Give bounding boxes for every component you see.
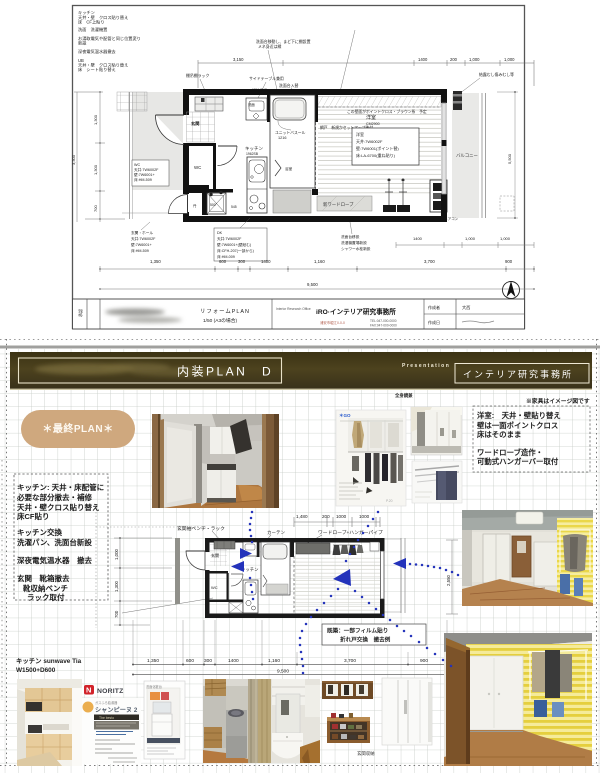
svg-text:1/50 (A3の場合): 1/50 (A3の場合)	[203, 317, 238, 324]
svg-text:作成日: 作成日	[428, 319, 440, 325]
svg-text:天井:7W6002F: 天井:7W6002F	[356, 138, 383, 144]
svg-text:必要な部分撤去・補修: 必要な部分撤去・補修	[16, 492, 92, 502]
svg-text:深夜電気温水器 撤去: 深夜電気温水器 撤去	[17, 555, 92, 565]
svg-text:新設: 新設	[78, 40, 87, 47]
svg-text:玄関・ホール: 玄関・ホール	[131, 230, 153, 235]
svg-text:新ワードローブ: 新ワードローブ	[323, 201, 354, 208]
svg-text:NORITZ: NORITZ	[97, 688, 124, 695]
svg-text:キッチン交換: キッチン交換	[17, 527, 62, 537]
svg-text:iRO·インテリア研究事務所: iRO·インテリア研究事務所	[316, 307, 396, 316]
svg-text:600: 600	[186, 658, 194, 664]
svg-text:200: 200	[450, 57, 458, 62]
svg-text:玄関収納: 玄関収納	[357, 750, 375, 757]
svg-text:600: 600	[219, 259, 227, 264]
svg-text:ラック取付: ラック取付	[27, 592, 65, 602]
svg-text:1,000: 1,000	[504, 57, 515, 62]
svg-text:1,160: 1,160	[268, 658, 280, 664]
svg-text:内装PLAN: 内装PLAN	[177, 365, 247, 379]
svg-text:天井・壁クロス貼り替え: 天井・壁クロス貼り替え	[17, 502, 100, 512]
svg-text:3,150: 3,150	[233, 57, 244, 62]
svg-text:棚吊棚ラック: 棚吊棚ラック	[186, 73, 209, 78]
svg-text:WC: WC	[211, 585, 218, 590]
svg-text:1400: 1400	[413, 236, 423, 241]
svg-text:N: N	[86, 686, 91, 695]
svg-text:1,000: 1,000	[500, 236, 511, 241]
svg-text:天井:7W6002F: 天井:7W6002F	[131, 236, 156, 241]
svg-text:床 シート貼り替え: 床 シート貼り替え	[78, 66, 116, 73]
svg-text:洗濯パン、洗面台新設: 洗濯パン、洗面台新設	[17, 537, 92, 547]
svg-text:900: 900	[505, 259, 513, 264]
svg-text:1400: 1400	[228, 658, 239, 664]
svg-text:1,000: 1,000	[114, 548, 119, 560]
svg-text:キッチン: 天井・床配管に: キッチン: 天井・床配管に	[17, 482, 104, 492]
svg-text:壁は一面ポイントクロス: 壁は一面ポイントクロス	[477, 421, 558, 430]
svg-text:洗面化粧台: 洗面化粧台	[146, 684, 162, 689]
svg-text:W1500+D600: W1500+D600	[16, 667, 56, 674]
svg-text:1,000: 1,000	[469, 57, 480, 62]
svg-text:洗濯機置場新設: 洗濯機置場新設	[341, 240, 367, 245]
svg-text:The besto: The besto	[99, 716, 114, 720]
svg-text:ガスふろ給湯器: ガスふろ給湯器	[95, 700, 118, 705]
svg-text:1,350: 1,350	[150, 259, 161, 264]
svg-text:床:CFH-207(一部から): 床:CFH-207(一部から)	[217, 248, 254, 253]
svg-text:1,300: 1,300	[114, 580, 119, 592]
svg-text:キッチン: キッチン	[245, 146, 263, 151]
svg-text:700: 700	[114, 610, 119, 618]
svg-text:＊GO: ＊GO	[339, 413, 351, 418]
svg-text:1,480: 1,480	[296, 514, 308, 519]
svg-text:9,500: 9,500	[277, 669, 289, 675]
svg-text:300: 300	[204, 658, 212, 664]
svg-text:1962SB: 1962SB	[246, 152, 259, 156]
svg-text:全身鏡兼: 全身鏡兼	[394, 392, 413, 399]
svg-text:結露むし傷みむし等: 結露むし傷みむし等	[479, 72, 514, 77]
svg-text:1,350: 1,350	[147, 658, 159, 664]
svg-text:1,300: 1,300	[93, 164, 98, 175]
svg-text:床:LA-6700(重ね貼り): 床:LA-6700(重ね貼り)	[356, 152, 396, 158]
svg-text:玄関: 玄関	[211, 552, 219, 558]
svg-text:床 CF上貼り: 床 CF上貼り	[78, 19, 105, 26]
svg-text:900: 900	[420, 658, 428, 664]
svg-text:床CF貼り: 床CF貼り	[17, 511, 50, 521]
svg-text:洗面台入替: 洗面台入替	[279, 83, 299, 88]
svg-text:バルコニー: バルコニー	[456, 153, 478, 158]
svg-text:床はそのまま: 床はそのまま	[477, 430, 521, 439]
svg-text:承認: 承認	[77, 309, 83, 317]
svg-text:1216: 1216	[278, 136, 286, 140]
svg-text:Presentation: Presentation	[402, 363, 450, 369]
svg-text:丹: 丹	[193, 204, 197, 208]
svg-text:壁:7W6001(ポイント替): 壁:7W6001(ポイント替)	[356, 145, 399, 151]
svg-text:洗面台移設: 洗面台移設	[341, 234, 360, 239]
svg-text:この壁面がポイントクロス・ブラウン系 予定: この壁面がポイントクロス・ブラウン系 予定	[347, 109, 427, 114]
svg-text:2,550: 2,550	[446, 574, 451, 586]
svg-text:お湯取電気や配管と同じ位置変り: お湯取電気や配管と同じ位置変り	[78, 35, 141, 42]
svg-text:洗面 洗濯機置: 洗面 洗濯機置	[78, 26, 107, 33]
svg-text:既築：一部フィルム貼り: 既築：一部フィルム貼り	[327, 627, 388, 635]
svg-text:WC: WC	[194, 165, 201, 170]
svg-text:P.20: P.20	[386, 499, 393, 503]
svg-text:1,300: 1,300	[93, 114, 98, 125]
svg-text:1400: 1400	[261, 259, 271, 264]
svg-text:玄関袖ベンチ・ラック: 玄関袖ベンチ・ラック	[177, 525, 225, 532]
svg-text:玄関: 玄関	[191, 120, 199, 127]
svg-text:CM2900: CM2900	[366, 122, 380, 126]
svg-text:1400: 1400	[418, 57, 428, 62]
svg-text:インテリア研究事務所: インテリア研究事務所	[463, 369, 573, 380]
svg-text:TEL:047-000-0000: TEL:047-000-0000	[370, 319, 397, 323]
svg-text:深夜電気温水器撤去: 深夜電気温水器撤去	[78, 48, 116, 55]
svg-text:WC: WC	[134, 163, 140, 167]
svg-text:靴収納ベンチ: 靴収納ベンチ	[23, 583, 68, 593]
svg-text:200: 200	[322, 514, 330, 519]
svg-text:ユニットバスール: ユニットバスール	[275, 130, 306, 135]
svg-text:シャンピーヌ 2: シャンピーヌ 2	[95, 706, 138, 714]
svg-text:3,300: 3,300	[71, 154, 76, 165]
svg-text:300: 300	[238, 259, 246, 264]
svg-text:床:HM-509: 床:HM-509	[134, 177, 152, 182]
svg-text:キッチン sunwave Tia: キッチン sunwave Tia	[16, 657, 82, 665]
svg-text:ワードローブ造作・: ワードローブ造作・	[477, 448, 543, 457]
svg-text:ワードローブ+ハンガーパイプ: ワードローブ+ハンガーパイプ	[318, 529, 383, 536]
svg-text:壁:7W6001+: 壁:7W6001+	[134, 172, 155, 177]
svg-text:サイドテーブル兼用: サイドテーブル兼用	[249, 76, 284, 81]
svg-text:1,160: 1,160	[314, 259, 325, 264]
svg-text:床:HM-509: 床:HM-509	[131, 248, 149, 253]
svg-text:洋室: 洋室	[356, 131, 364, 137]
svg-text:天井:7W6002F: 天井:7W6002F	[217, 236, 242, 241]
svg-text:壁:7W6001+(壁紙む): 壁:7W6001+(壁紙む)	[217, 242, 251, 247]
svg-text:Interior Research Office: Interior Research Office	[276, 307, 311, 311]
svg-text:※家具はイメージ図です: ※家具はイメージ図です	[526, 397, 590, 405]
svg-text:3,700: 3,700	[344, 658, 356, 664]
svg-text:D: D	[262, 365, 271, 379]
svg-text:洋室: 洋室	[366, 114, 376, 121]
svg-text:シャワー水栓新設: シャワー水栓新設	[341, 246, 371, 251]
svg-text:作成者: 作成者	[428, 304, 440, 310]
svg-text:5,500: 5,500	[507, 153, 512, 164]
svg-text:壁:7W6001+: 壁:7W6001+	[131, 242, 152, 247]
svg-text:1000: 1000	[336, 514, 347, 519]
svg-text:折れ戸交換 撤去例: 折れ戸交換 撤去例	[340, 636, 391, 644]
svg-text:リフォームPLAN: リフォームPLAN	[200, 308, 250, 315]
svg-text:大西: 大西	[462, 304, 470, 311]
svg-text:9,500: 9,500	[307, 282, 318, 287]
svg-text:メネ身近は縁: メネ身近は縁	[258, 44, 281, 49]
svg-text:700: 700	[93, 205, 98, 212]
svg-text:洗面: 洗面	[248, 102, 255, 107]
svg-text:浴室: 浴室	[285, 166, 293, 171]
svg-text:500: 500	[210, 203, 216, 207]
svg-text:1,000: 1,000	[465, 236, 476, 241]
svg-text:＊最終PLAN＊: ＊最終PLAN＊	[42, 422, 113, 435]
svg-text:浦安市堀江0-0-0: 浦安市堀江0-0-0	[320, 320, 345, 325]
svg-text:可動式ハンガーバー取付: 可動式ハンガーバー取付	[477, 457, 559, 466]
svg-text:玄関 靴箱撤去: 玄関 靴箱撤去	[17, 573, 70, 583]
svg-text:545: 545	[231, 205, 237, 209]
svg-text:DK: DK	[217, 231, 223, 235]
svg-text:FAX:047-000-0000: FAX:047-000-0000	[370, 324, 397, 328]
svg-text:天井:7W6002F: 天井:7W6002F	[134, 167, 159, 172]
svg-text:3,700: 3,700	[424, 259, 435, 264]
svg-text:洋室: 天井・壁貼り替え: 洋室: 天井・壁貼り替え	[477, 411, 561, 420]
svg-text:1000: 1000	[359, 514, 370, 519]
